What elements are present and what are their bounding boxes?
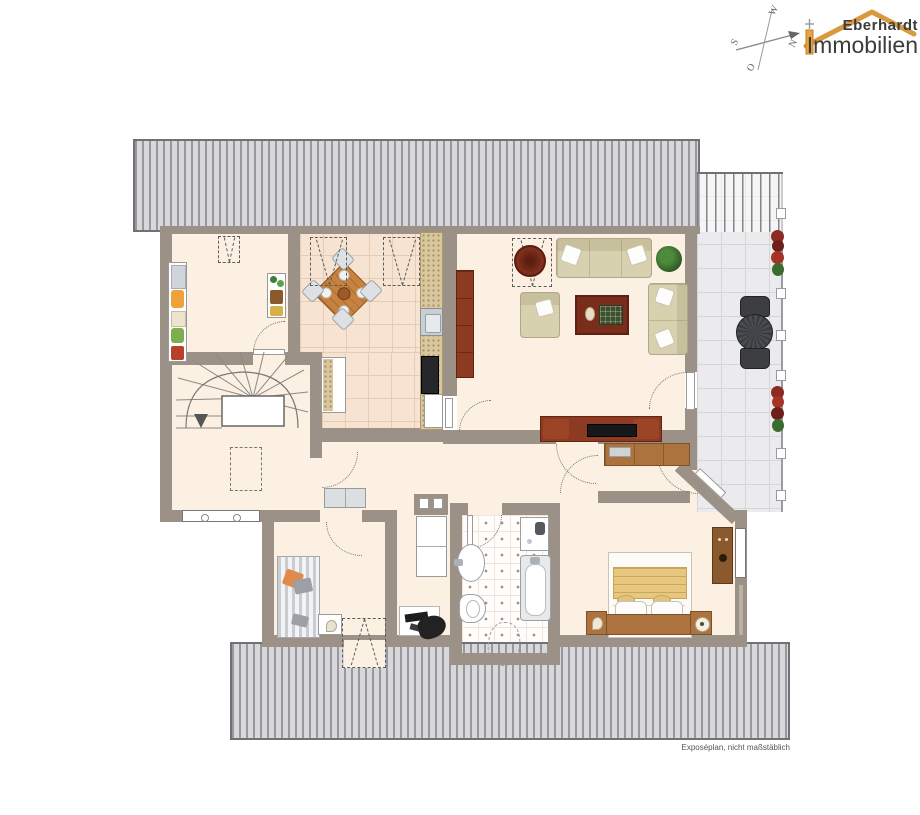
kitchen-sink (420, 308, 443, 336)
wall-study-right (385, 510, 397, 647)
terrace-roof-overhang (697, 172, 783, 232)
terrace-railing-post (776, 288, 786, 299)
dormer-vee-right (224, 237, 230, 262)
cabinet-divider (345, 489, 346, 507)
shower-drain (527, 539, 532, 544)
shelf-item-boxes (171, 265, 186, 289)
dormer-vee-right (351, 619, 365, 665)
dormer-vee-left (402, 240, 416, 285)
door-leaf-terrace (686, 372, 695, 410)
dresser-dot (718, 538, 721, 541)
dormer-marking-kitchen-west (310, 237, 347, 286)
window-pane-dot (233, 514, 241, 522)
wall-bath-top-west (450, 503, 468, 515)
tv-sideboard (540, 416, 662, 442)
dormer-marking-kitchen-east (383, 237, 420, 286)
cabinet-divider (417, 546, 446, 547)
daybed (277, 556, 320, 638)
compass-east-label: O (745, 62, 758, 74)
kitchen-tall-unit (321, 357, 346, 413)
compass-south-label: S (730, 37, 741, 47)
living-plant (656, 246, 682, 272)
terrace-chair (740, 348, 770, 369)
dresser-knob (719, 554, 727, 562)
nightstand-left (586, 611, 607, 635)
floor-plan-canvas: W S N O Eberhardt Immobilien Exposéplan,… (0, 0, 920, 815)
dormer-vee-left (364, 619, 378, 665)
wall-kitchen-living (443, 230, 457, 396)
shower (520, 517, 549, 551)
bathtub (520, 555, 551, 621)
logo-line1: Eberhardt (790, 18, 918, 33)
bowl (335, 285, 353, 303)
plant-pot (270, 276, 277, 283)
sideboard-tray (609, 447, 631, 457)
plant-pot (277, 280, 284, 287)
dormer-vee-left (229, 237, 235, 262)
door-leaf-kitchen (445, 398, 453, 428)
tub-basin (525, 564, 546, 616)
pantry-shelf (168, 262, 187, 362)
dresser-dot (725, 538, 728, 541)
table-item (326, 620, 337, 632)
daybed-cushion-gray (293, 577, 314, 594)
shelf-item-jars (171, 311, 186, 327)
sofa-back (677, 284, 687, 354)
toilet-seat (466, 600, 480, 618)
hall-dashed-marker (230, 447, 262, 491)
wall-kitchen-bottom (322, 428, 443, 442)
tv-screen (587, 424, 637, 437)
terrace-railing-post (776, 208, 786, 219)
dormer-vee-right (316, 240, 330, 285)
terrace-railing-post (776, 490, 786, 501)
terrace-railing-post (776, 448, 786, 459)
terrace-railing-post (776, 330, 786, 341)
roof-hatch-top (133, 139, 700, 232)
terrace-table (736, 314, 773, 351)
shelf-item-greens (171, 328, 184, 343)
table-decor (585, 307, 595, 321)
shelf-item-fruit (171, 290, 184, 308)
nightstand-right (690, 611, 712, 635)
shower-fixture (535, 522, 545, 535)
flower (772, 263, 784, 276)
rug-coffee-table (575, 295, 629, 335)
window-bedroom (735, 528, 746, 578)
logo-line2: Immobilien (790, 34, 918, 57)
study-side-table (318, 614, 342, 635)
desk-plant (402, 592, 432, 609)
logo-wordmark: Eberhardt Immobilien (790, 18, 918, 57)
duct-inset-left (419, 498, 429, 509)
kitchen-oven (421, 356, 439, 394)
wall-pantry-kitchen (288, 230, 300, 354)
wall-study-left (262, 510, 274, 647)
wall-watermark-strip (739, 585, 743, 635)
living-tall-cabinet (456, 270, 474, 378)
plan-disclaimer: Exposéplan, nicht maßstäblich (600, 743, 790, 752)
terrace-railing-post (776, 370, 786, 381)
dormer-marking-pantry (218, 236, 240, 263)
bath-sink (457, 544, 485, 582)
dormer-marking-study (342, 618, 386, 668)
dormer-vee-left (329, 240, 343, 285)
shelf-item-bread (270, 306, 283, 316)
daybed-cushion-small (291, 613, 309, 628)
sideboard-section (543, 419, 569, 439)
shelf-item-basket (270, 290, 283, 304)
rug-pattern (599, 305, 623, 325)
wall-bedroom-top (598, 491, 690, 503)
sink-faucet (454, 559, 463, 566)
living-round-table (514, 245, 546, 277)
pantry-plant-shelf (267, 273, 286, 318)
nightstand-candle (592, 617, 603, 630)
compass-west-label: W (767, 4, 781, 17)
window-landing (182, 510, 260, 522)
duct-inset-right (433, 498, 443, 509)
dormer-vee-right (389, 240, 403, 285)
hall-sideboard (604, 443, 690, 466)
tub-faucet (530, 557, 540, 564)
window-pane-dot (201, 514, 209, 522)
flower (772, 419, 784, 432)
staircase (172, 352, 310, 430)
toilet (459, 594, 486, 623)
flower-box-north (770, 230, 786, 278)
alcove-cabinet (416, 516, 447, 577)
lamp-dot (700, 622, 704, 626)
tall-unit-front (323, 359, 333, 411)
sink-basin (425, 314, 441, 333)
bedroom-dresser (712, 527, 733, 584)
flower-box-south (770, 386, 786, 434)
kitchen-cabinets (424, 394, 443, 428)
hall-shoe-cabinet (324, 488, 366, 508)
